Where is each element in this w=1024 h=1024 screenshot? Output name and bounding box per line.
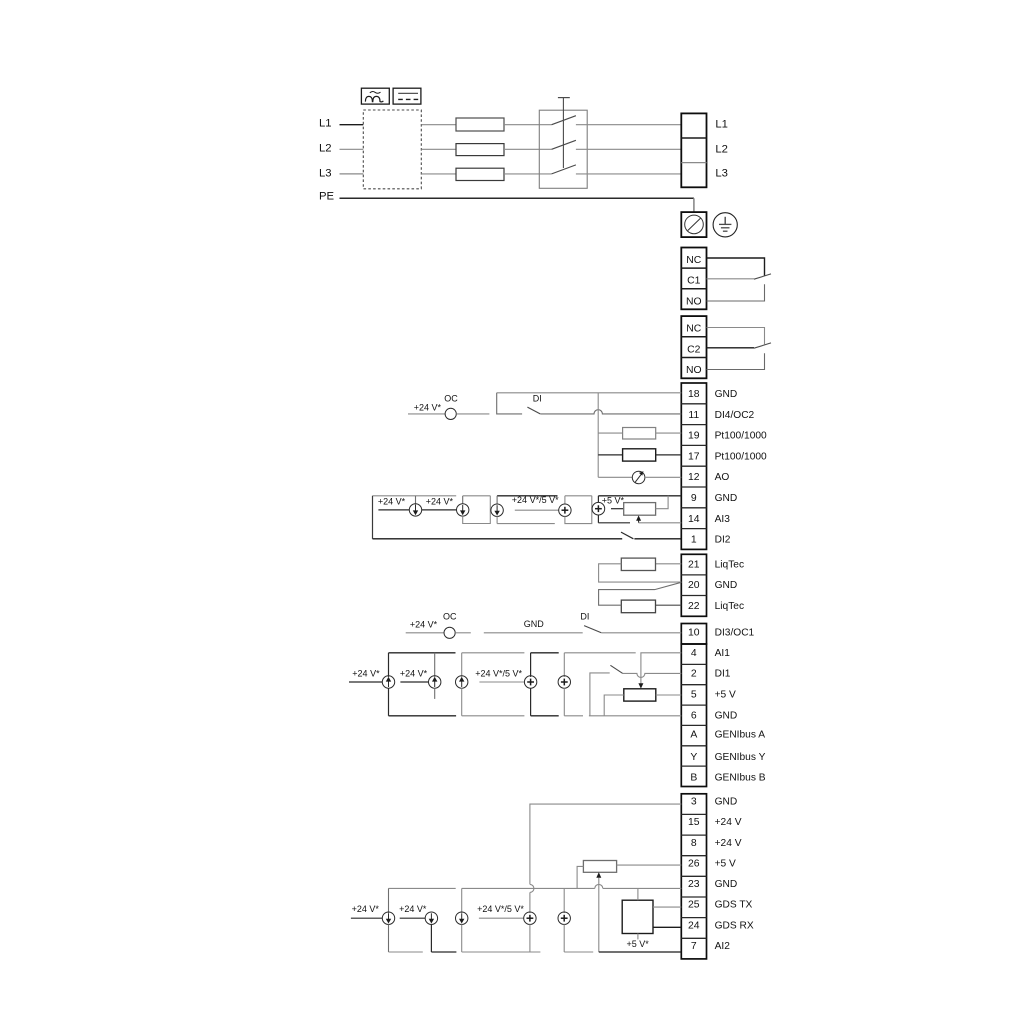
svg-text:17: 17 [688,451,700,462]
svg-text:+24 V*: +24 V* [426,497,454,507]
svg-text:+24 V*: +24 V* [378,497,406,507]
svg-text:L3: L3 [715,167,728,179]
svg-text:DI1: DI1 [715,669,731,680]
svg-text:DI: DI [580,612,589,622]
svg-text:AI1: AI1 [715,648,731,659]
svg-text:5: 5 [691,690,697,701]
svg-text:GND: GND [715,389,738,400]
svg-text:OC: OC [444,394,458,404]
svg-text:B: B [690,773,697,784]
svg-text:C2: C2 [687,344,701,355]
svg-text:L2: L2 [715,143,728,155]
svg-text:15: 15 [688,817,700,828]
svg-text:11: 11 [688,410,699,421]
svg-text:+24 V*/5 V*: +24 V*/5 V* [475,669,522,679]
svg-text:NC: NC [686,324,702,335]
svg-text:1: 1 [691,535,697,546]
svg-text:20: 20 [688,580,700,591]
svg-text:C1: C1 [687,276,701,287]
svg-text:GND: GND [715,879,738,890]
svg-text:L1: L1 [715,119,728,131]
svg-text:19: 19 [688,431,700,442]
svg-text:LiqTec: LiqTec [715,560,744,571]
svg-text:12: 12 [688,472,700,483]
svg-text:6: 6 [691,710,697,721]
svg-text:L3: L3 [319,167,332,179]
svg-text:GND: GND [715,493,738,504]
svg-text:3: 3 [691,797,697,808]
svg-text:8: 8 [691,838,697,849]
svg-text:AI2: AI2 [715,941,731,952]
svg-text:+24 V*: +24 V* [352,669,380,679]
svg-text:GDS TX: GDS TX [715,900,753,911]
svg-text:OC: OC [443,612,457,622]
svg-text:L1: L1 [319,118,332,130]
svg-text:10: 10 [688,628,700,639]
svg-text:Y: Y [690,752,697,763]
svg-text:+5 V*: +5 V* [602,495,625,505]
svg-text:22: 22 [688,601,700,612]
svg-text:Pt100/1000: Pt100/1000 [715,431,767,442]
svg-text:4: 4 [691,648,697,659]
svg-text:GND: GND [524,619,545,629]
svg-text:PE: PE [319,190,335,202]
svg-text:+5 V: +5 V [715,858,736,869]
svg-text:DI3/OC1: DI3/OC1 [715,628,755,639]
svg-text:A: A [690,729,697,740]
svg-text:Pt100/1000: Pt100/1000 [715,451,767,462]
svg-text:24: 24 [688,920,700,931]
svg-text:DI2: DI2 [715,535,731,546]
svg-text:GENIbus Y: GENIbus Y [715,752,766,763]
svg-text:21: 21 [688,560,700,571]
svg-text:+5 V: +5 V [715,690,736,701]
svg-text:GND: GND [715,797,738,808]
svg-text:25: 25 [688,900,700,911]
svg-text:+24 V*/5 V*: +24 V*/5 V* [512,495,559,505]
svg-text:18: 18 [688,389,700,400]
svg-text:2: 2 [691,669,697,680]
svg-text:+24 V*: +24 V* [352,904,380,914]
svg-text:26: 26 [688,858,700,869]
svg-text:GENIbus B: GENIbus B [715,773,766,784]
svg-text:+24 V: +24 V [715,817,742,828]
svg-text:AO: AO [715,472,730,483]
svg-text:23: 23 [688,879,700,890]
svg-text:+24 V*: +24 V* [414,402,442,412]
svg-text:+24 V*: +24 V* [410,620,438,630]
svg-text:AI3: AI3 [715,514,731,525]
svg-text:GDS RX: GDS RX [715,920,754,931]
svg-text:LiqTec: LiqTec [715,601,744,612]
svg-text:DI4/OC2: DI4/OC2 [715,410,755,421]
svg-text:GENIbus A: GENIbus A [715,729,766,740]
svg-text:7: 7 [691,941,697,952]
svg-text:+24 V*: +24 V* [400,669,428,679]
svg-text:+5 V*: +5 V* [627,939,650,949]
svg-text:DI: DI [533,394,542,404]
svg-text:+24 V*: +24 V* [399,904,427,914]
svg-text:14: 14 [688,514,700,525]
svg-text:9: 9 [691,493,697,504]
svg-text:GND: GND [715,580,738,591]
svg-text:+24 V: +24 V [715,838,742,849]
svg-text:+24 V*/5 V*: +24 V*/5 V* [477,904,524,914]
svg-text:GND: GND [715,710,738,721]
svg-text:NC: NC [686,255,702,266]
svg-text:NO: NO [686,365,702,376]
svg-text:NO: NO [686,296,702,307]
svg-text:L2: L2 [319,143,332,155]
